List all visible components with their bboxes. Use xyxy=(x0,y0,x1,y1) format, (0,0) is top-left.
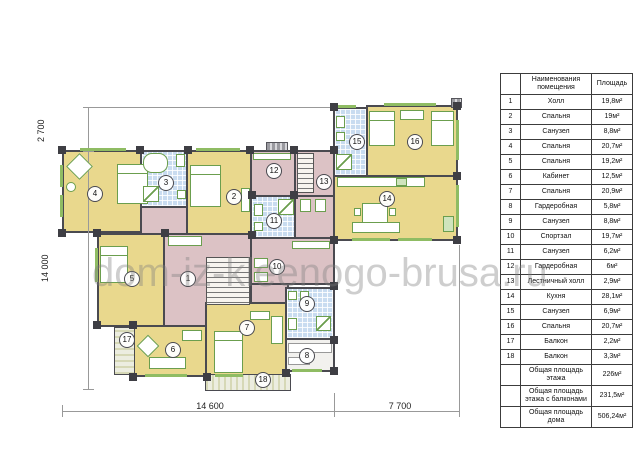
dimension-tick xyxy=(334,393,335,417)
room-label-3: 3 xyxy=(158,175,174,191)
cell-area: 8,8м² xyxy=(592,215,633,230)
desk-icon xyxy=(182,330,202,341)
log-end xyxy=(453,172,461,180)
cell-name: Общая площадь этажа xyxy=(521,365,592,386)
sofa-icon xyxy=(149,357,186,369)
log-end xyxy=(282,369,290,377)
window-marker xyxy=(145,374,187,377)
dresser-icon xyxy=(250,311,270,320)
table-row: 18Балкон3,3м² xyxy=(501,350,633,365)
log-end xyxy=(290,191,298,199)
room-label-15: 15 xyxy=(349,134,365,150)
toilet-icon xyxy=(176,154,185,167)
cell-num: 9 xyxy=(501,215,521,230)
dimension-label-2700: 2 700 xyxy=(36,112,46,150)
kitchen-counter-icon xyxy=(337,177,425,187)
room-label-13: 13 xyxy=(316,174,332,190)
shower-icon xyxy=(143,186,159,202)
dresser-icon xyxy=(400,110,424,120)
cell-num: 17 xyxy=(501,335,521,350)
log-end xyxy=(93,321,101,329)
room-label-8: 8 xyxy=(299,348,315,364)
cell-area: 5,8м² xyxy=(592,200,633,215)
shower-icon xyxy=(278,199,294,215)
table-row: 10Спортзал19,7м² xyxy=(501,230,633,245)
bathtub-icon xyxy=(143,153,168,173)
table-total-row: Общая площадь этажа226м² xyxy=(501,365,633,386)
cell-num: 3 xyxy=(501,125,521,140)
window-marker xyxy=(456,120,459,160)
window-marker xyxy=(398,238,432,241)
site-watermark: dom-iz-kleenogo-brusa.ru xyxy=(92,251,548,296)
chair-icon xyxy=(389,208,396,216)
cell-area: 12,5м² xyxy=(592,170,633,185)
room-label-9: 9 xyxy=(299,296,315,312)
dimension-label-7700: 7 700 xyxy=(355,401,445,411)
cell-area: 2,9м² xyxy=(592,275,633,290)
cell-area: 231,5м² xyxy=(592,386,633,407)
toilet-icon xyxy=(336,116,345,128)
table-total-row: Общая площадь этажа с балконами231,5м² xyxy=(501,386,633,407)
table-row: 3Санузел8,8м² xyxy=(501,125,633,140)
cell-area: 8,8м² xyxy=(592,125,633,140)
cell-name: Санузел xyxy=(521,215,592,230)
dimension-label-14600: 14 600 xyxy=(150,401,270,411)
toilet-icon xyxy=(288,318,297,330)
cell-num: 10 xyxy=(501,230,521,245)
cell-area: 6,9м² xyxy=(592,305,633,320)
bed-icon xyxy=(214,331,243,373)
window-marker xyxy=(215,374,243,377)
cabinet-icon xyxy=(168,236,202,246)
log-end xyxy=(330,336,338,344)
header-room-name: Наименования помещения xyxy=(521,74,592,95)
cell-name: Санузел xyxy=(521,305,592,320)
cell-num: 16 xyxy=(501,320,521,335)
cell-num: 6 xyxy=(501,170,521,185)
room-label-12: 12 xyxy=(266,163,282,179)
dimension-tick xyxy=(83,151,94,152)
cell-name: Санузел xyxy=(521,125,592,140)
log-end xyxy=(129,321,137,329)
log-end xyxy=(203,373,211,381)
cell-area: 19м² xyxy=(592,110,633,125)
dimension-extension-line xyxy=(88,107,333,108)
cell-name: Кабинет xyxy=(521,170,592,185)
cell-name: Балкон xyxy=(521,335,592,350)
cell-name: Спальня xyxy=(521,140,592,155)
cell-area: 20,9м² xyxy=(592,185,633,200)
small-stairs-icon xyxy=(297,153,314,193)
window-marker xyxy=(60,165,63,187)
header-area: Площадь xyxy=(592,74,633,95)
stove-icon xyxy=(396,178,407,186)
fridge-icon xyxy=(443,216,454,232)
cell-num xyxy=(501,386,521,407)
sofa-icon xyxy=(292,241,330,249)
cell-name: Спальня xyxy=(521,185,592,200)
toilet-icon xyxy=(254,204,263,216)
log-end xyxy=(248,231,256,239)
cell-num: 7 xyxy=(501,185,521,200)
log-end xyxy=(246,146,254,154)
cell-area: 6,2м² xyxy=(592,245,633,260)
window-marker xyxy=(80,148,126,151)
cell-area: 19,8м² xyxy=(592,95,633,110)
cell-area: 2,2м² xyxy=(592,335,633,350)
cell-num: 2 xyxy=(501,110,521,125)
cell-area: 6м² xyxy=(592,260,633,275)
log-end xyxy=(93,229,101,237)
room-label-6: 6 xyxy=(165,342,181,358)
room-label-7: 7 xyxy=(239,320,255,336)
cell-name: Холл xyxy=(521,95,592,110)
log-end xyxy=(58,146,66,154)
cell-name: Спортзал xyxy=(521,230,592,245)
sofa-icon xyxy=(271,316,283,344)
table-row: 9Санузел8,8м² xyxy=(501,215,633,230)
sink-icon xyxy=(177,190,186,199)
dimension-tick xyxy=(83,389,94,390)
bed-icon xyxy=(431,111,454,146)
log-end xyxy=(453,102,461,110)
bed-icon xyxy=(369,111,395,146)
table-total-row: Общая площадь дома506,24м² xyxy=(501,407,633,428)
cell-area: 226м² xyxy=(592,365,633,386)
log-end xyxy=(290,146,298,154)
table-row: 2Спальня19м² xyxy=(501,110,633,125)
log-end xyxy=(330,236,338,244)
floor-plan-page: 1 2 3 4 5 6 7 8 9 10 11 12 13 14 15 16 1… xyxy=(0,0,634,476)
window-marker xyxy=(292,369,322,372)
table-row: 1Холл19,8м² xyxy=(501,95,633,110)
cell-name: Спальня xyxy=(521,320,592,335)
cell-num: 1 xyxy=(501,95,521,110)
cell-name: Спальня xyxy=(521,110,592,125)
dimension-tick xyxy=(62,405,63,417)
cell-name: Общая площадь этажа с балконами xyxy=(521,386,592,407)
cell-area: 3,3м² xyxy=(592,350,633,365)
cell-num: 8 xyxy=(501,200,521,215)
shelf-icon xyxy=(253,153,291,160)
table-row: 4Спальня20,7м² xyxy=(501,140,633,155)
cell-area: 28,1м² xyxy=(592,290,633,305)
room-label-2: 2 xyxy=(226,189,242,205)
cell-area: 20,7м² xyxy=(592,140,633,155)
window-marker xyxy=(384,103,436,106)
log-end xyxy=(58,229,66,237)
log-end xyxy=(136,146,144,154)
log-end xyxy=(161,229,169,237)
window-marker xyxy=(456,185,459,227)
table-row: 5Спальня19,2м² xyxy=(501,155,633,170)
log-end xyxy=(330,146,338,154)
shower-icon xyxy=(316,316,331,331)
vent-icon xyxy=(266,142,288,151)
cell-name: Балкон xyxy=(521,350,592,365)
table-row: 15Санузел6,9м² xyxy=(501,305,633,320)
cell-area: 19,2м² xyxy=(592,155,633,170)
washer-icon xyxy=(300,199,311,212)
cell-num: 4 xyxy=(501,140,521,155)
cell-num xyxy=(501,365,521,386)
log-end xyxy=(330,103,338,111)
log-end xyxy=(184,146,192,154)
room-label-4: 4 xyxy=(87,186,103,202)
window-marker xyxy=(338,105,356,108)
cell-area: 20,7м² xyxy=(592,320,633,335)
table-row: 7Спальня20,9м² xyxy=(501,185,633,200)
window-marker xyxy=(352,238,390,241)
cell-name: Гардеробная xyxy=(521,200,592,215)
header-number-column xyxy=(501,74,521,95)
log-end xyxy=(453,236,461,244)
cell-name: Общая площадь дома xyxy=(521,407,592,428)
cell-num: 15 xyxy=(501,305,521,320)
cell-area: 19,7м² xyxy=(592,230,633,245)
log-end xyxy=(129,373,137,381)
washer-icon xyxy=(315,199,326,212)
table-row: 6Кабинет12,5м² xyxy=(501,170,633,185)
room-label-16: 16 xyxy=(407,134,423,150)
sink-icon xyxy=(336,132,345,141)
room-label-14: 14 xyxy=(379,191,395,207)
table-row: 16Спальня20,7м² xyxy=(501,320,633,335)
sofa-icon xyxy=(352,222,400,233)
cell-area: 506,24м² xyxy=(592,407,633,428)
sink-icon xyxy=(254,222,263,231)
dimension-line xyxy=(62,411,460,412)
cell-num: 18 xyxy=(501,350,521,365)
shower-icon xyxy=(336,154,352,170)
table-row: 8Гардеробная5,8м² xyxy=(501,200,633,215)
log-end xyxy=(330,367,338,375)
table-row: 17Балкон2,2м² xyxy=(501,335,633,350)
table-header-row: Наименования помещения Площадь xyxy=(501,74,633,95)
window-marker xyxy=(60,195,63,217)
plant-icon xyxy=(66,182,76,192)
dimension-tick xyxy=(83,107,94,108)
cell-num xyxy=(501,407,521,428)
room-label-18: 18 xyxy=(255,372,271,388)
cell-name: Спальня xyxy=(521,155,592,170)
log-end xyxy=(248,191,256,199)
dimension-line xyxy=(88,107,89,152)
room-label-17: 17 xyxy=(119,332,135,348)
cell-num: 5 xyxy=(501,155,521,170)
chair-icon xyxy=(354,208,361,216)
bed-icon xyxy=(190,165,221,207)
window-marker xyxy=(196,148,240,151)
dimension-label-14000: 14 000 xyxy=(40,243,50,293)
room-label-11: 11 xyxy=(266,213,282,229)
